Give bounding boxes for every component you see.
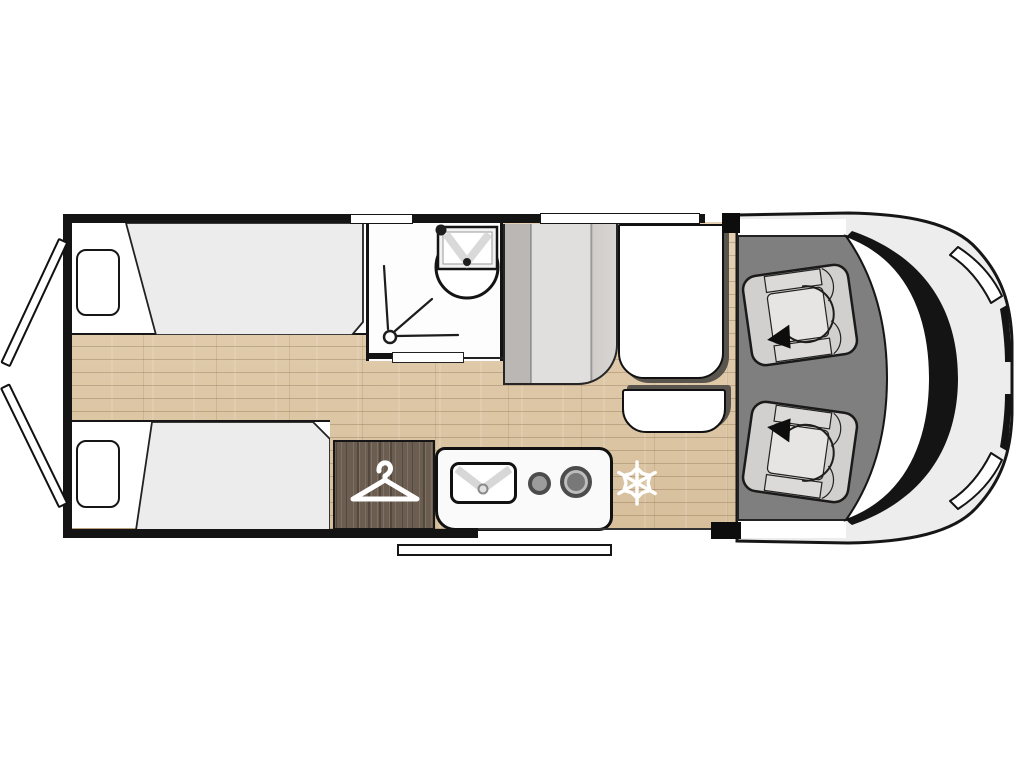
rear-door-bottom-open: [0, 383, 68, 508]
hanger-icon: [346, 458, 422, 512]
entry-step: [397, 544, 612, 556]
window-dinette: [540, 213, 700, 224]
bathroom-fixtures: [366, 222, 503, 362]
pillow-top: [76, 249, 120, 316]
b-pillar-top: [722, 213, 740, 233]
window-bathroom: [350, 214, 413, 224]
wall-rear: [63, 214, 72, 538]
burner-large: [560, 466, 592, 498]
dinette-bench-seat: [503, 224, 618, 385]
burner-small: [528, 472, 551, 495]
entry-floor-edge: [478, 528, 711, 530]
bathroom-sliding-door: [392, 352, 464, 363]
rear-door-top-open: [0, 238, 68, 368]
wardrobe: [333, 440, 435, 530]
pillow-bottom: [76, 440, 120, 508]
snowflake-icon: [613, 459, 661, 507]
wall-bottom: [63, 529, 478, 538]
floorplan-canvas: [0, 0, 1024, 768]
cab-front: [700, 200, 1024, 570]
kitchen-sink: [450, 462, 517, 504]
swivel-seat-bottom: [741, 400, 858, 504]
basin-drain: [463, 258, 471, 266]
sink-drain: [479, 485, 488, 494]
b-pillar-bottom: [711, 522, 741, 539]
swivel-seat-top: [741, 263, 858, 367]
basin-tap: [436, 225, 447, 236]
